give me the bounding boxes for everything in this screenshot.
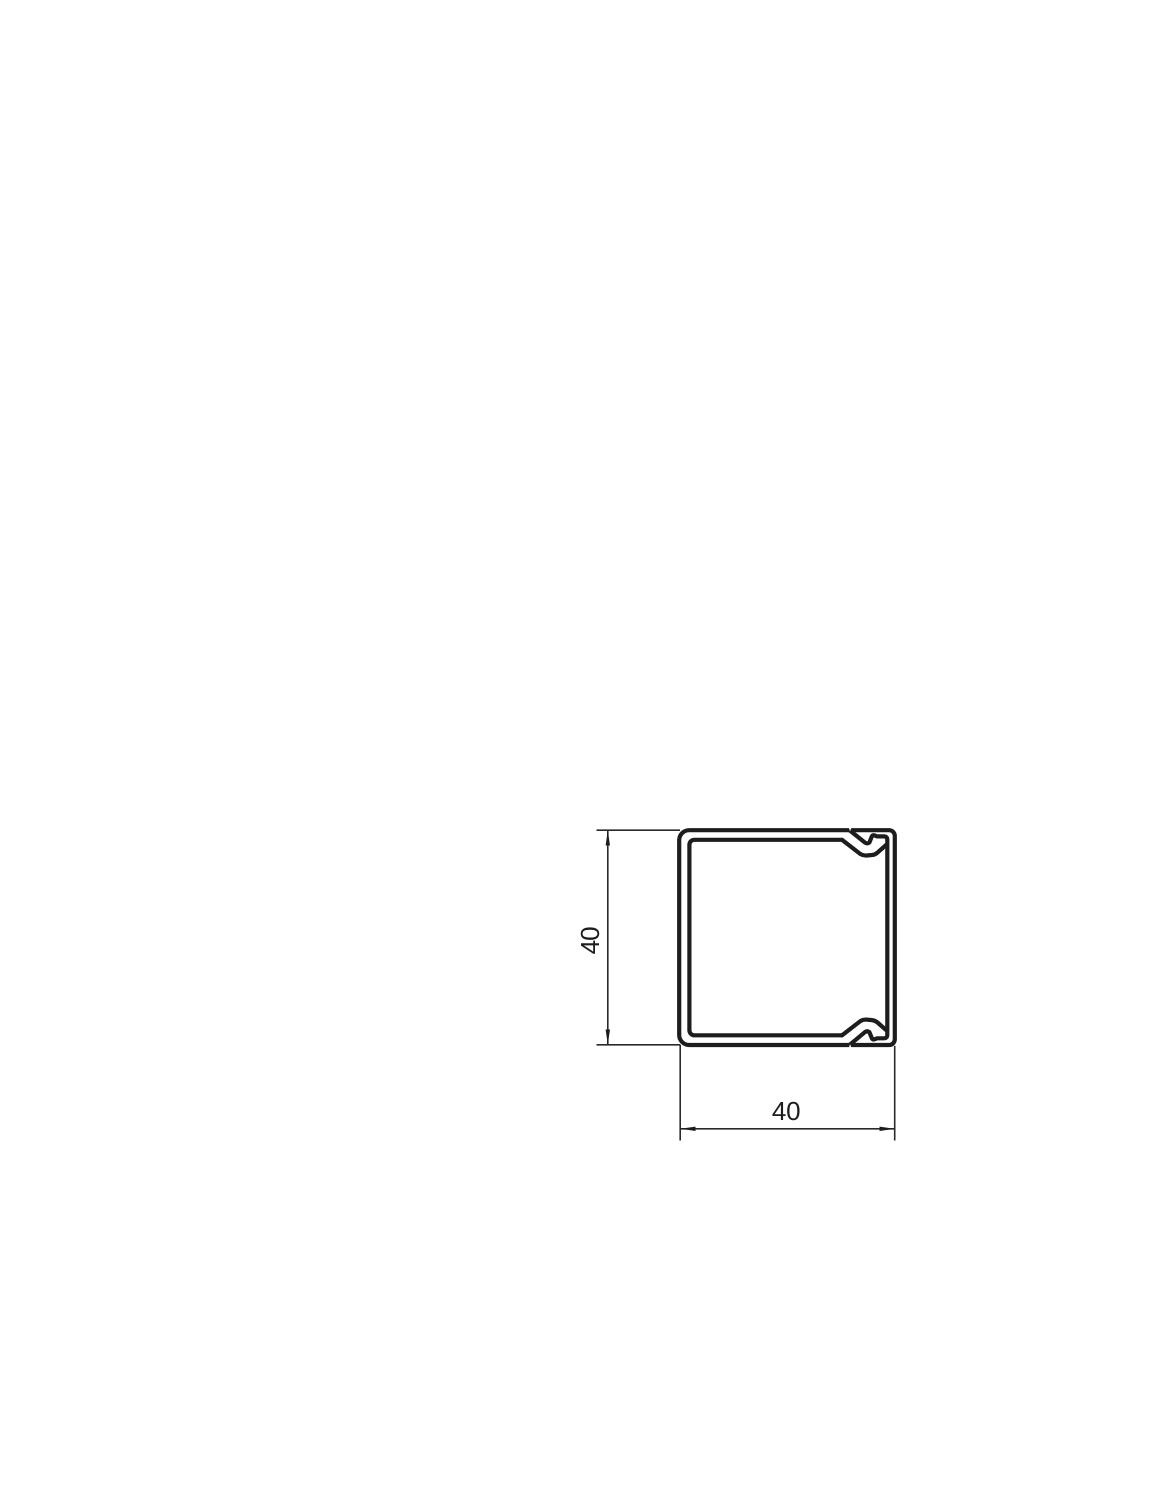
svg-text:40: 40 [772,1096,801,1126]
svg-text:40: 40 [575,927,605,954]
